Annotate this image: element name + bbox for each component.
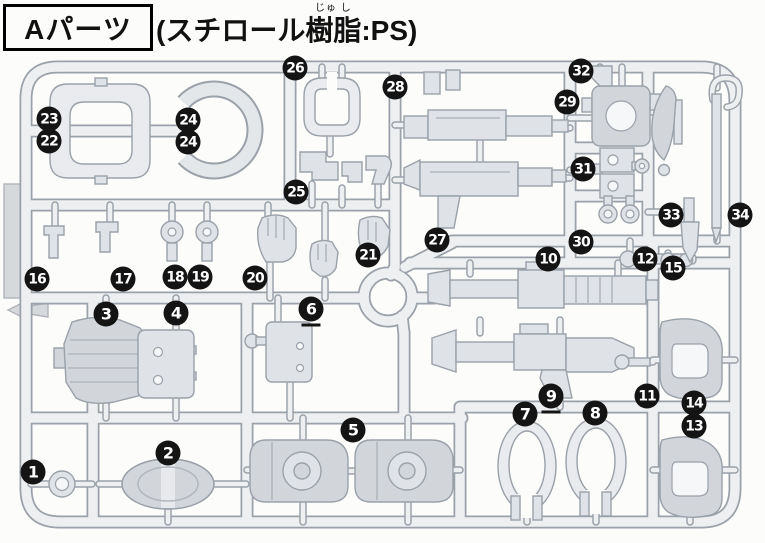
part-badge-1: 1 [21, 460, 46, 485]
part-badge-2: 2 [156, 441, 181, 466]
part-badge-28: 28 [383, 75, 408, 100]
part-thruster-ring [566, 418, 626, 516]
part-bazooka-lower [432, 324, 634, 398]
part-block-square [582, 86, 660, 146]
part-badge-25: 25 [284, 180, 309, 205]
part-clip [592, 66, 612, 86]
part-plate [138, 330, 196, 398]
part-badge-13: 13 [682, 414, 707, 439]
part-badge-26: 26 [283, 56, 308, 81]
part-badge-18: 18 [163, 265, 188, 290]
part-badge-12: 12 [633, 247, 658, 272]
part-badge-5: 5 [341, 418, 366, 443]
part-badge-15: 15 [661, 256, 686, 281]
part-badge-16: 16 [25, 267, 50, 292]
part-badge-8: 8 [583, 401, 608, 426]
part-badge-30: 30 [569, 230, 594, 255]
part-shoe [660, 437, 722, 518]
part-step [300, 152, 391, 184]
part-badge-20: 20 [243, 266, 268, 291]
part-badge-33: 33 [659, 203, 684, 228]
part-badge-31: 31 [571, 157, 596, 182]
part-badge-34: 34 [728, 203, 753, 228]
part-clip-pair [424, 70, 460, 94]
part-badge-6: 6 [299, 297, 324, 322]
part-badge-29: 29 [555, 90, 580, 115]
part-badge-21: 21 [356, 243, 381, 268]
part-shoe [660, 319, 722, 400]
part-knife [681, 198, 699, 262]
part-chest [54, 317, 150, 403]
part-badge-24: 24 [176, 130, 201, 155]
part-badge-10: 10 [536, 247, 561, 272]
part-small-fittings [44, 221, 218, 261]
part-rifle [404, 110, 568, 140]
part-machine-gun [404, 160, 566, 228]
part-box [245, 322, 312, 382]
manual-page: Aパーツ (スチロールじゅ し樹脂:PS) [0, 0, 765, 543]
part-ring-small [49, 471, 75, 497]
part-badge-9: 9 [539, 384, 564, 409]
part-badge-19: 19 [188, 265, 213, 290]
part-badge-7: 7 [513, 402, 538, 427]
part-thruster-ring [498, 421, 556, 520]
part-lens [122, 459, 214, 509]
part-badge-3: 3 [94, 302, 119, 327]
part-badge-17: 17 [111, 267, 136, 292]
part-badge-27: 27 [425, 228, 450, 253]
part-badge-23: 23 [37, 107, 62, 132]
part-badge-4: 4 [164, 301, 189, 326]
part-badge-22: 22 [37, 129, 62, 154]
part-badge-14: 14 [682, 391, 707, 416]
part-badge-32: 32 [569, 59, 594, 84]
part-badge-11: 11 [635, 384, 660, 409]
